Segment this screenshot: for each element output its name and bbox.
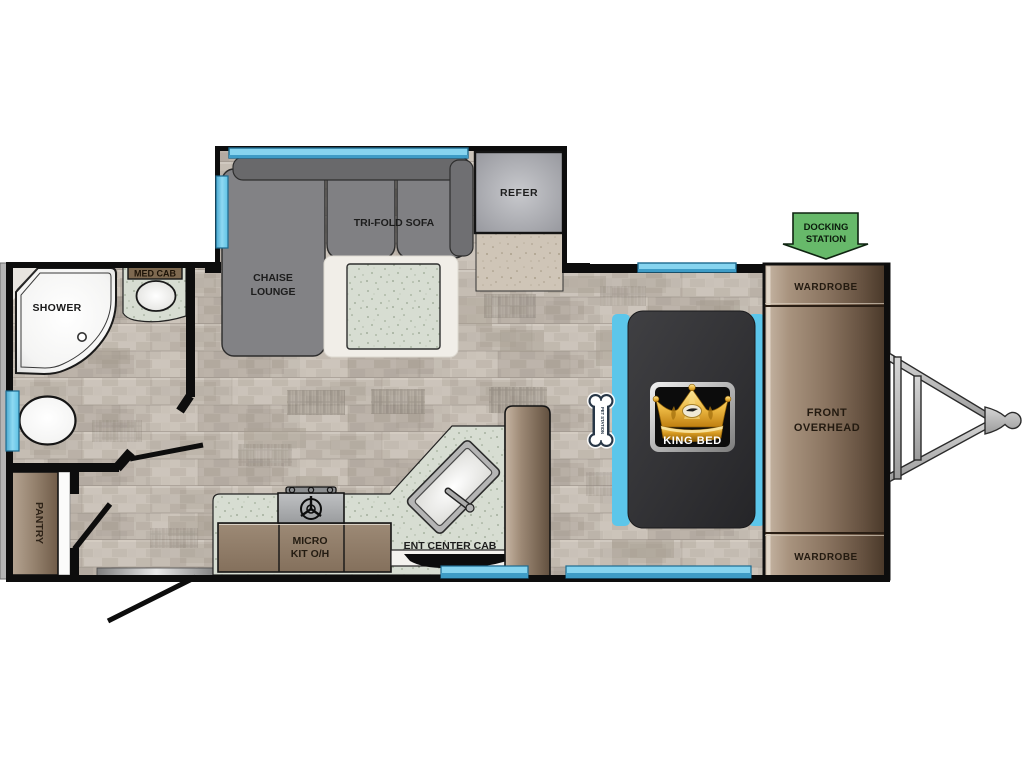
svg-text:STATION: STATION: [806, 234, 846, 245]
svg-text:REFER: REFER: [500, 187, 538, 199]
svg-text:CHAISE: CHAISE: [253, 272, 293, 284]
svg-text:PANTRY: PANTRY: [33, 502, 45, 544]
svg-text:PET STATION: PET STATION: [600, 407, 605, 434]
svg-text:OVERHEAD: OVERHEAD: [794, 422, 860, 434]
svg-text:WARDROBE: WARDROBE: [794, 282, 857, 293]
svg-text:ENT CENTER CAB: ENT CENTER CAB: [404, 540, 497, 552]
svg-text:MED CAB: MED CAB: [134, 269, 176, 279]
svg-text:FRONT: FRONT: [807, 407, 847, 419]
svg-text:MICRO: MICRO: [293, 535, 328, 547]
svg-text:KIT O/H: KIT O/H: [291, 548, 330, 560]
svg-text:WARDROBE: WARDROBE: [794, 552, 857, 563]
svg-text:TRI-FOLD SOFA: TRI-FOLD SOFA: [354, 217, 435, 229]
svg-text:SHOWER: SHOWER: [32, 302, 81, 314]
svg-text:DOCKING: DOCKING: [804, 222, 849, 233]
svg-text:LOUNGE: LOUNGE: [251, 286, 296, 298]
svg-text:KING BED: KING BED: [663, 435, 722, 447]
